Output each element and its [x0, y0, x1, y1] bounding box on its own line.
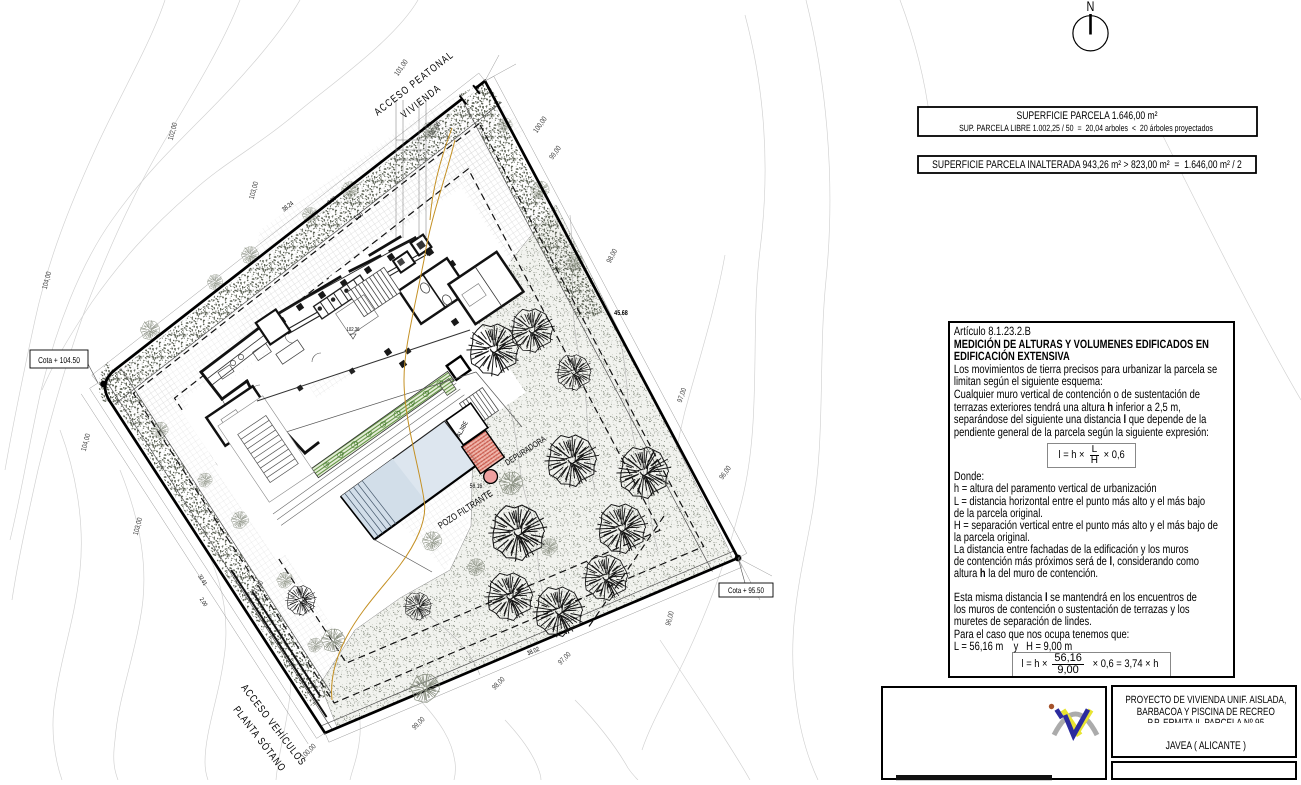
svg-text:SUPERFICIE PARCELA 1.646,00 m²: SUPERFICIE PARCELA 1.646,00 m² — [1017, 110, 1158, 122]
svg-text:102,36: 102,36 — [346, 327, 359, 333]
svg-text:56.16: 56.16 — [470, 483, 483, 490]
svg-text:45.68: 45.68 — [614, 310, 628, 317]
svg-text:SUPERFICIE PARCELA INALTERADA: SUPERFICIE PARCELA INALTERADA 943,26 m² … — [932, 159, 1242, 171]
svg-text:Cota + 95.50: Cota + 95.50 — [728, 586, 764, 595]
svg-text:Cota + 104.50: Cota + 104.50 — [38, 355, 80, 365]
svg-text:SUP. PARCELA LIBRE 1.002,25 /: SUP. PARCELA LIBRE 1.002,25 / 50 = 20,04… — [959, 123, 1213, 133]
svg-text:N: N — [1087, 0, 1095, 14]
